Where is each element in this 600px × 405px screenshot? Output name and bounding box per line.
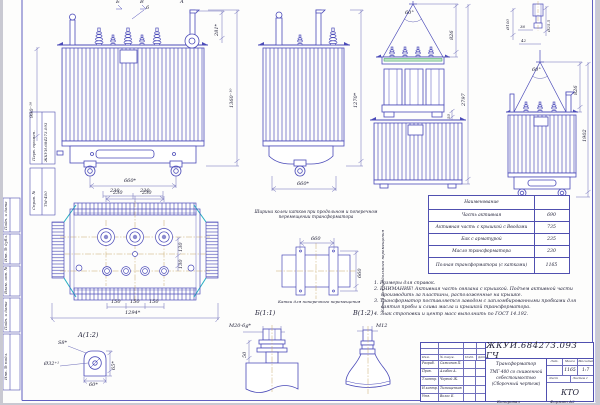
dim-plan-150b: 150 xyxy=(130,300,140,305)
view-arrow-label-a: А xyxy=(180,0,184,5)
drawing-title-line2: ТМГ-400 со сниженной себестоимостью xyxy=(486,369,546,381)
note-2: 2. ВНИМАНИЕ! Активная часть связана с кр… xyxy=(374,287,584,299)
dim-plan-230a: 230 xyxy=(113,191,123,196)
detail-b xyxy=(243,325,298,393)
track-diagram xyxy=(276,238,359,299)
pin-detail xyxy=(511,1,549,44)
mass-row-value: 1165 xyxy=(535,258,568,273)
sig-role: Утв. xyxy=(421,394,439,401)
dim-rear-height: 1902 xyxy=(583,129,588,142)
mass-label: Масса xyxy=(563,359,579,365)
mass-value: 1165 xyxy=(563,366,579,375)
title-block-signatures: Изм. № докум. Подп. Дата Разраб.Самсонов… xyxy=(421,343,486,401)
dim-front-total-height: 1360⁻¹⁰ xyxy=(230,89,235,108)
sig-header-data: Дата xyxy=(477,355,485,360)
scale-label: Масштаб xyxy=(578,359,593,365)
sheets-label: Листов 1 xyxy=(571,376,594,382)
mass-table: Наименование Часть активная 690 Активная… xyxy=(428,195,570,274)
mass-row-label: Часть активная xyxy=(429,210,535,221)
margin-perv-primen-value: ЖКУИ.684273.093 xyxy=(44,123,48,162)
dim-front-track: 660* xyxy=(124,179,136,184)
detail-a-width: 60* xyxy=(89,383,98,388)
note-3: 3. Трансформатор поставляется заводом с … xyxy=(374,299,584,311)
scale-value: 1:7 xyxy=(578,366,593,375)
dim-pin-len2: 42 xyxy=(521,39,526,43)
sig-header-docnum: № докум. xyxy=(439,355,464,360)
dim-front-bushing: 281* xyxy=(215,24,220,36)
drawing-title-line1: Трансформатор xyxy=(486,362,546,369)
note-4: 4. Знак строповки и центр масс выполнить… xyxy=(374,312,584,318)
detail-b-thread: М20-6g* xyxy=(229,324,251,329)
track-label-transverse: Катки для поперечного перемещения xyxy=(278,300,360,304)
detail-a-thickness: S8* xyxy=(58,341,67,346)
sig-role: Пров. xyxy=(421,369,439,376)
sig-name: Самсонов П. xyxy=(439,361,464,368)
sig-role: Т.контр. xyxy=(421,377,439,384)
drawing-title-line3: (Сборочный чертеж) xyxy=(486,381,546,387)
sheet-label: Лист xyxy=(547,376,571,382)
sig-name: Тимощенков xyxy=(439,386,464,393)
detail-v-title: В(1:2) xyxy=(353,310,373,317)
dim-active-gap: 50 xyxy=(447,114,451,119)
margin-sprav-label: Справ. № xyxy=(32,191,36,210)
detail-a-height: 65* xyxy=(112,361,117,370)
dim-plan-150a: 150 xyxy=(111,300,121,305)
sig-header-podp: Подп. xyxy=(464,355,477,360)
mass-row-value: 235 xyxy=(535,234,568,245)
dim-plan-230b: 230 xyxy=(142,191,152,196)
dim-plan-130a: 130 xyxy=(179,242,184,252)
view-arrow-label-v: В xyxy=(140,0,144,5)
margin-podp-data-1: Подп. и дата xyxy=(4,202,8,231)
callout-6: 6 xyxy=(146,6,149,11)
sig-name: Волос Е. xyxy=(439,394,464,401)
sheet-edge-right xyxy=(596,0,600,405)
margin-sprav-value: ТМ-400 xyxy=(44,191,48,207)
dim-pin-dia1: Ø100 xyxy=(506,19,510,30)
front-view xyxy=(57,5,208,176)
dim-pin-dia2: Ø25.5 xyxy=(547,20,551,32)
detail-b-height: 50 xyxy=(243,352,248,358)
dim-active-sling: 826 xyxy=(450,30,455,40)
detail-v-thread: М12 xyxy=(376,324,387,329)
dim-front-tank-height: 990⁻¹⁰ xyxy=(30,102,35,118)
plan-view xyxy=(52,201,218,303)
dim-active-angle: 60° xyxy=(405,11,414,16)
mass-row-label: Активная часть с крышкой с Вводами xyxy=(429,222,535,233)
dim-side-height: 1270* xyxy=(354,93,359,108)
margin-inv-podl: Инв. № подл. xyxy=(4,353,8,380)
view-arrow-label-b: Б xyxy=(116,0,120,5)
dim-plan-130b: 130 xyxy=(179,259,184,269)
dim-rear-angle: 60° xyxy=(532,68,541,73)
mass-table-header: Наименование xyxy=(429,196,535,209)
dim-plan-total: 1294* xyxy=(125,311,140,316)
side-view xyxy=(258,10,350,176)
dim-track-660h: 660 xyxy=(311,237,321,242)
track-caption: Ширина колеи катков при продольном и поп… xyxy=(248,210,384,221)
engineering-drawing-sheet: Б В А 6 990⁻¹⁰ 1360⁻¹⁰ 281* 660* 230 230… xyxy=(0,0,600,405)
margin-perv-primen-label: Перв. примен. xyxy=(32,130,36,161)
lit-label: Лит. xyxy=(547,359,563,365)
dim-side-width: 660* xyxy=(297,182,309,187)
mass-row-label: Масло трансформатора xyxy=(429,246,535,257)
technical-notes: 1. Размеры для справок. 2. ВНИМАНИЕ! Акт… xyxy=(374,281,584,318)
detail-a-title: А(1:2) xyxy=(78,332,98,339)
margin-inv-dubl: Инв. № дубл. xyxy=(4,235,8,262)
dim-plan-150c: 150 xyxy=(149,300,159,305)
dim-track-660v: 660 xyxy=(358,268,363,278)
sig-role: Н.контр. xyxy=(421,386,439,393)
mass-row-value: 230 xyxy=(535,246,568,257)
dim-active-total: 2797 xyxy=(462,93,467,106)
copied-label: Копировал xyxy=(497,400,520,404)
format-label: Формат А2 xyxy=(550,400,575,404)
detail-a-diameter: Ø32⁺¹ xyxy=(44,362,59,367)
margin-podp-data-2: Подп. и дата xyxy=(4,302,8,331)
sig-name: Черной Ж. xyxy=(439,377,464,384)
dim-pin-len1: 36 xyxy=(520,25,525,29)
mass-row-label: Полная трансформатора (с катками) xyxy=(429,258,535,273)
detail-v xyxy=(346,326,390,394)
sig-header-izm: Изм. xyxy=(421,355,439,360)
dim-rear-sling: 826 xyxy=(574,85,579,95)
title-block: Изм. № докум. Подп. Дата Разраб.Самсонов… xyxy=(420,342,594,402)
document-number: ЖКУИ.684273.093 ГЧ xyxy=(486,343,593,359)
rear-view xyxy=(506,50,578,197)
mass-table-header2 xyxy=(535,196,568,209)
detail-b-title: Б(1:1) xyxy=(255,310,275,317)
sig-role: Разраб. xyxy=(421,361,439,368)
sig-name: Алибек А. xyxy=(439,369,464,376)
mass-row-label: Бак с арматурой xyxy=(429,234,535,245)
drawing-title: Трансформатор ТМГ-400 со сниженной себес… xyxy=(486,359,547,401)
detail-a xyxy=(60,346,113,384)
mass-row-value: 690 xyxy=(535,210,568,221)
margin-vzam-inv: Взам. инв. № xyxy=(4,267,8,294)
mass-row-value: 735 xyxy=(535,222,568,233)
